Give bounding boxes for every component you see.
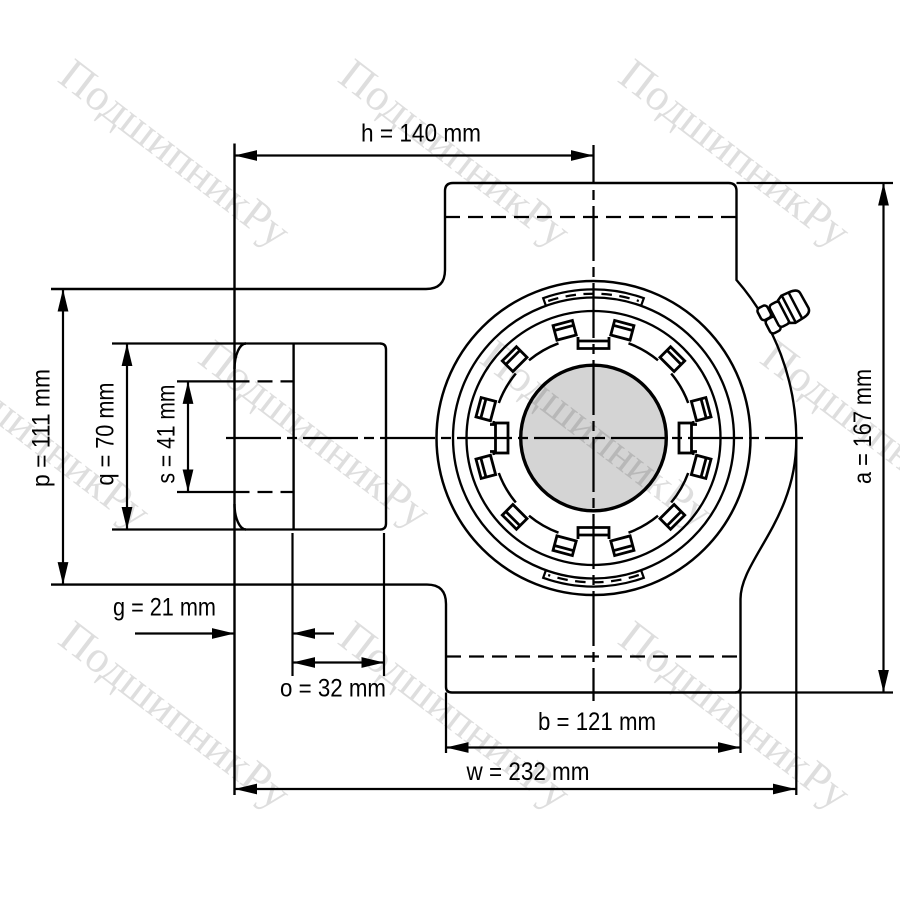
svg-text:g = 21 mm: g = 21 mm [113,594,216,622]
svg-text:o = 32 mm: o = 32 mm [280,675,386,703]
svg-text:p = 111 mm: p = 111 mm [28,369,56,487]
svg-text:b = 121 mm: b = 121 mm [538,708,656,736]
svg-text:h = 140 mm: h = 140 mm [361,120,481,148]
svg-text:s = 41 mm: s = 41 mm [153,385,181,484]
svg-text:q = 70 mm: q = 70 mm [92,383,120,486]
svg-text:a = 167 mm: a = 167 mm [849,369,877,484]
svg-text:w = 232 mm: w = 232 mm [466,758,590,786]
